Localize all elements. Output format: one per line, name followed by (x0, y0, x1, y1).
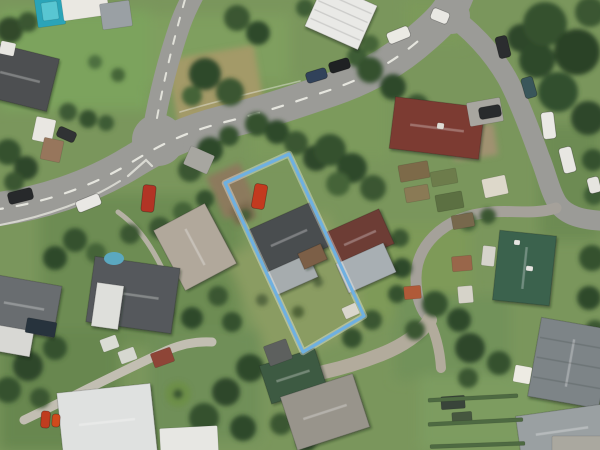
conservatory-roof (91, 282, 124, 329)
white-building-bottom-edge (159, 426, 218, 450)
deck-green-house (481, 245, 496, 266)
tree (480, 208, 496, 224)
tree (182, 86, 202, 106)
white-roof-house-bottomleft (57, 383, 158, 450)
tree (212, 378, 240, 406)
tree (230, 415, 256, 441)
tree (208, 286, 228, 306)
tree (447, 308, 471, 332)
tree (63, 228, 87, 252)
tree (360, 175, 386, 201)
truck-red-roadside (141, 184, 157, 212)
green-roof-house (492, 230, 556, 306)
tree (222, 312, 242, 332)
tree (4, 172, 24, 192)
tree (326, 172, 350, 196)
tree (487, 351, 511, 375)
tree (577, 286, 600, 310)
tree (422, 291, 448, 317)
terracotta-shed (451, 255, 472, 272)
tree (519, 42, 555, 78)
conservatory (91, 282, 124, 329)
tree (43, 336, 67, 360)
white-roof-left-edge (0, 41, 16, 57)
tree (246, 21, 270, 45)
brick-driveway (40, 137, 64, 163)
tree (380, 74, 406, 100)
tree (455, 333, 485, 363)
tree (43, 246, 67, 270)
tree (181, 307, 203, 329)
white-canopy (513, 365, 533, 385)
tree (30, 388, 50, 408)
tree (219, 126, 239, 146)
tree (120, 224, 140, 244)
tree (59, 103, 77, 121)
tree (458, 368, 478, 388)
white-shed-lane (457, 285, 473, 303)
tree (111, 68, 125, 82)
trampoline (104, 252, 124, 265)
bin-red-1 (40, 411, 50, 429)
tree (88, 55, 102, 69)
tree (405, 320, 425, 340)
tree (216, 78, 244, 106)
white-roof-house-bottomleft-roof (57, 383, 158, 450)
aerial-imagery-canvas (0, 0, 600, 450)
tree (173, 389, 183, 399)
swimming-pool-inner (41, 1, 59, 21)
tree (554, 29, 600, 75)
tree (224, 5, 250, 31)
vent-green-house-1 (514, 240, 520, 246)
bin-red-2 (52, 414, 61, 428)
tree (98, 115, 114, 131)
tree (357, 57, 383, 83)
chimney (437, 123, 445, 130)
tree (79, 110, 97, 128)
vent-green-house-2 (526, 266, 533, 272)
tree (292, 306, 304, 318)
concrete-pad-bottom-right (552, 436, 600, 450)
van-white-east-1 (540, 111, 556, 139)
tree (18, 12, 38, 32)
orange-shed (403, 285, 421, 299)
aerial-map-view[interactable] (0, 0, 600, 450)
awning (99, 0, 132, 30)
tree (538, 72, 578, 112)
tree (256, 294, 268, 306)
tree (342, 328, 362, 348)
tree (189, 58, 221, 90)
